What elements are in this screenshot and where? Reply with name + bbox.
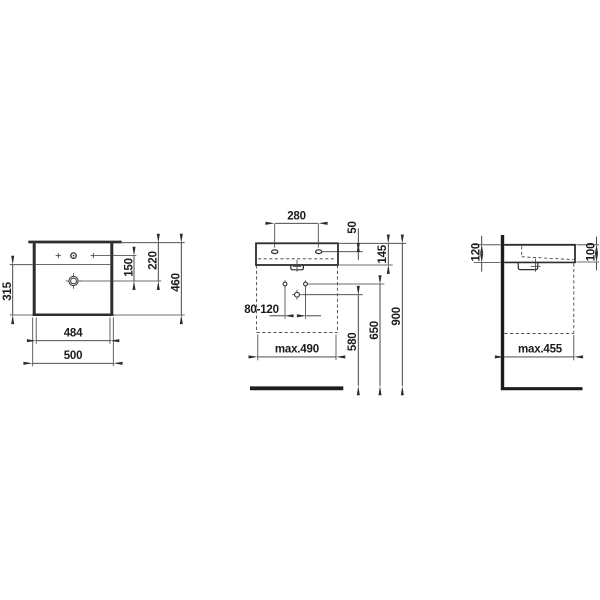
dim-label-900: 900 (391, 307, 403, 326)
dim-label-315: 315 (2, 281, 14, 300)
dim-label-150: 150 (123, 258, 135, 277)
dim-label-500: 500 (64, 350, 83, 362)
optional-tap-hole-left (56, 253, 61, 258)
fixing-hole-left (283, 280, 287, 287)
tap-hole-left (272, 250, 278, 254)
optional-tap-hole-right (91, 253, 96, 258)
side-view: 120 100 max.455 (471, 235, 600, 390)
dim-label-100: 100 (585, 243, 597, 262)
dim-label-280: 280 (287, 211, 306, 223)
dim-label-650: 650 (369, 321, 381, 340)
fixing-hole-right (304, 280, 308, 287)
drain-symbol (66, 273, 81, 288)
dim-label-220: 220 (148, 251, 160, 270)
hidden-bowl-profile (522, 257, 574, 260)
technical-drawing: 315 150 220 460 484 500 (0, 0, 600, 600)
tap-hole-right (316, 250, 322, 254)
waste-outlet-symbol (292, 290, 302, 300)
tap-hole-center (73, 255, 75, 257)
front-view: 315 150 220 460 484 500 (2, 242, 185, 366)
dim-label-484: 484 (64, 328, 83, 340)
dim-label-120: 120 (471, 243, 483, 262)
dim-label-max455: max.455 (518, 344, 563, 356)
washbasin-dimension-sheet: 315 150 220 460 484 500 (0, 0, 600, 600)
dim-label-580: 580 (347, 333, 359, 352)
dim-label-max490: max.490 (275, 344, 319, 356)
dim-label-145: 145 (377, 244, 389, 263)
dim-label-50: 50 (347, 221, 359, 233)
installation-view: 280 50 145 80-120 max.490 580 650 900 (244, 211, 406, 389)
dim-label-460: 460 (171, 273, 183, 292)
dim-label-80-120: 80-120 (244, 304, 279, 316)
